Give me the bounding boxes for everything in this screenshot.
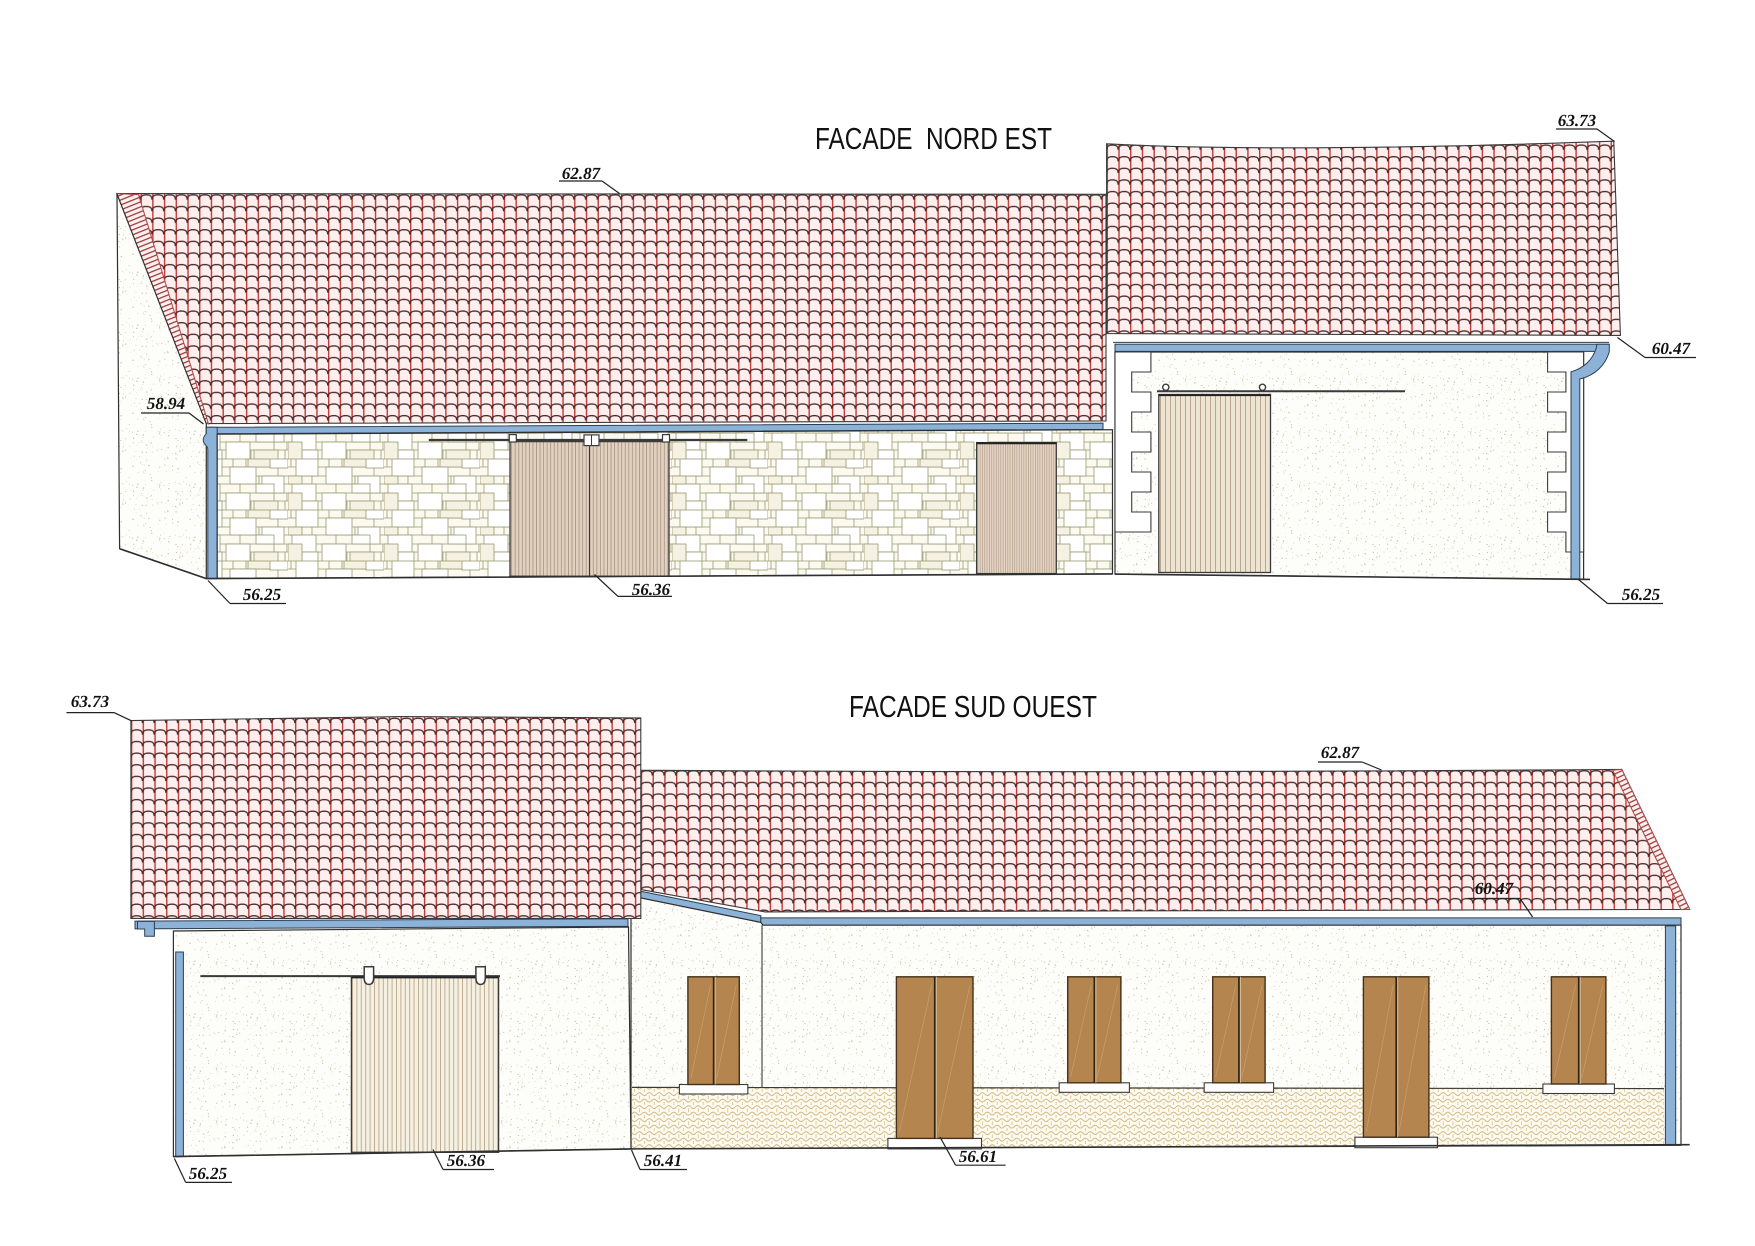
- svg-text:62.87: 62.87: [562, 164, 602, 183]
- svg-text:FACADE SUD OUEST: FACADE SUD OUEST: [849, 690, 1097, 724]
- svg-text:56.25: 56.25: [243, 585, 282, 604]
- svg-text:62.87: 62.87: [1321, 743, 1361, 762]
- svg-text:60.47: 60.47: [1475, 879, 1515, 898]
- svg-text:60.47: 60.47: [1652, 339, 1692, 358]
- svg-text:58.94: 58.94: [147, 394, 185, 413]
- svg-text:63.73: 63.73: [1558, 111, 1597, 130]
- svg-text:63.73: 63.73: [71, 692, 110, 711]
- svg-text:56.41: 56.41: [644, 1151, 682, 1170]
- svg-text:56.25: 56.25: [189, 1164, 228, 1183]
- svg-text:56.61: 56.61: [959, 1147, 997, 1166]
- svg-text:56.36: 56.36: [447, 1151, 486, 1170]
- svg-text:FACADE NORD EST: FACADE NORD EST: [815, 122, 1052, 156]
- svg-text:56.25: 56.25: [1622, 585, 1661, 604]
